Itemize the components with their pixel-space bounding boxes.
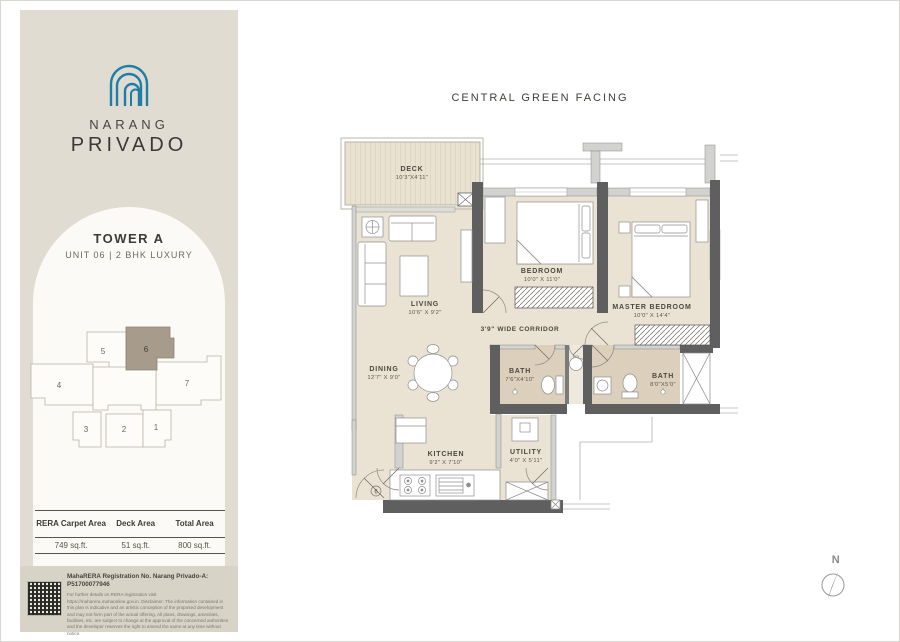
- qr-code: [27, 581, 62, 616]
- key-plan-label-3: 3: [84, 425, 89, 434]
- left-outer-wall: [352, 206, 356, 430]
- svg-text:12'7" X 9'0": 12'7" X 9'0": [367, 375, 400, 381]
- key-plan-label-1: 1: [154, 423, 159, 432]
- key-plan-label-6: 6: [144, 345, 149, 354]
- brand-name-line1: NARANG: [20, 117, 238, 132]
- key-plan-unit-5: [87, 332, 126, 368]
- value-rera-carpet-area: 749 sq.ft.: [35, 538, 107, 553]
- header-deck-area: Deck Area: [107, 511, 164, 537]
- hob: [400, 475, 430, 496]
- kitchen-label: KITCHEN: [428, 451, 465, 458]
- refrigerator: [396, 418, 426, 443]
- corridor-label: 3'9" WIDE CORRIDOR: [481, 326, 560, 333]
- sidebar: NARANG PRIVADO TOWER A UNIT 06 | 2 BHK L…: [20, 10, 238, 632]
- master-cabinet: [696, 200, 708, 242]
- tower-title: TOWER A: [33, 231, 225, 246]
- bedroom-label: BEDROOM: [521, 268, 563, 275]
- washbasin: [570, 358, 583, 371]
- t-column-stem: [591, 151, 600, 183]
- master-bedroom-label: MASTER BEDROOM: [612, 304, 691, 311]
- key-plan-label-5: 5: [101, 347, 106, 356]
- key-plan-label-2: 2: [122, 425, 127, 434]
- deck-label: DECK: [400, 166, 423, 173]
- unit-subtitle: UNIT 06 | 2 BHK LUXURY: [33, 250, 225, 260]
- facing-title: CENTRAL GREEN FACING: [330, 92, 750, 104]
- dining-label: DINING: [369, 366, 398, 373]
- key-plan-label-4: 4: [57, 381, 62, 390]
- area-table-header-row: RERA Carpet Area Deck Area Total Area: [35, 510, 225, 537]
- bedside-table: [619, 222, 630, 233]
- area-table: RERA Carpet Area Deck Area Total Area 74…: [35, 510, 225, 554]
- washbasin-2: [597, 380, 608, 391]
- rera-registration-text: MahaRERA Registration No. Narang Privado…: [67, 573, 230, 589]
- bath1-label: BATH: [509, 368, 531, 375]
- key-plan-unit-4: [31, 364, 93, 405]
- svg-text:10'0" X 11'0": 10'0" X 11'0": [524, 277, 560, 283]
- svg-text:10'6" X 9'2": 10'6" X 9'2": [408, 310, 441, 316]
- toilet-bowl: [542, 376, 555, 394]
- toilet-bowl-2: [623, 374, 637, 392]
- bath2-label: BATH: [652, 373, 674, 380]
- coffee-table: [400, 256, 428, 296]
- t-column-cap: [583, 143, 622, 151]
- header-total-area: Total Area: [164, 511, 225, 537]
- key-plan-label-7: 7: [185, 379, 190, 388]
- svg-text:10'0" X 14'4": 10'0" X 14'4": [634, 313, 671, 319]
- legal-block: MahaRERA Registration No. Narang Privado…: [20, 566, 238, 632]
- tap-2: [661, 390, 665, 394]
- disclaimer-text: For further details on RERA registration…: [67, 592, 230, 637]
- svg-text:10'3"X4'11": 10'3"X4'11": [396, 175, 428, 181]
- washing-machine: [512, 418, 538, 441]
- faucet: [467, 483, 471, 487]
- bedside-table: [619, 286, 630, 297]
- bedroom-cabinet: [485, 197, 505, 243]
- utility-right-wall: [551, 415, 556, 500]
- living-label: LIVING: [411, 301, 439, 308]
- sink: [439, 478, 463, 493]
- svg-text:8'0"X5'0": 8'0"X5'0": [650, 382, 676, 388]
- value-total-area: 800 sq.ft.: [164, 538, 225, 553]
- master-wardrobe: [635, 325, 710, 345]
- brand-block: NARANG PRIVADO: [20, 60, 238, 157]
- compass: N: [800, 545, 870, 625]
- arch-logo-icon: [105, 60, 153, 106]
- svg-text:9'2" X 7'10": 9'2" X 7'10": [429, 460, 462, 466]
- header-rera-carpet-area: RERA Carpet Area: [35, 511, 107, 537]
- duct-box-deck: [458, 193, 473, 206]
- dining-table: [414, 354, 452, 392]
- foyer-cabinet: [461, 230, 472, 282]
- brand-name-line2: PRIVADO: [20, 134, 238, 157]
- svg-text:7'6"X4'10": 7'6"X4'10": [505, 377, 534, 383]
- floor-plan: 6 DECK 10'3"X4'11" LIVING 10'6" X 9'2" D…: [330, 130, 750, 530]
- toilet-tank-2: [622, 392, 638, 398]
- area-table-value-row: 749 sq.ft. 51 sq.ft. 800 sq.ft.: [35, 537, 225, 554]
- svg-text:4'0" X 5'11": 4'0" X 5'11": [510, 458, 543, 464]
- value-deck-area: 51 sq.ft.: [107, 538, 164, 553]
- deck-sliding-window: [355, 207, 455, 212]
- three-seater-sofa: [358, 242, 386, 306]
- kitchen-utility-divider: [496, 414, 501, 468]
- tap: [513, 390, 517, 394]
- key-plan-core: [93, 367, 156, 410]
- bath-lobby-floor: [569, 345, 583, 404]
- two-seater-sofa: [389, 216, 436, 241]
- north-label: N: [832, 554, 840, 566]
- brochure-page: NARANG PRIVADO TOWER A UNIT 06 | 2 BHK L…: [0, 0, 900, 642]
- bedroom-wardrobe: [515, 287, 593, 308]
- toilet-tank: [556, 376, 563, 394]
- key-plan: 5 6 4 7 3 2 1: [29, 318, 229, 463]
- utility-label: UTILITY: [510, 449, 542, 456]
